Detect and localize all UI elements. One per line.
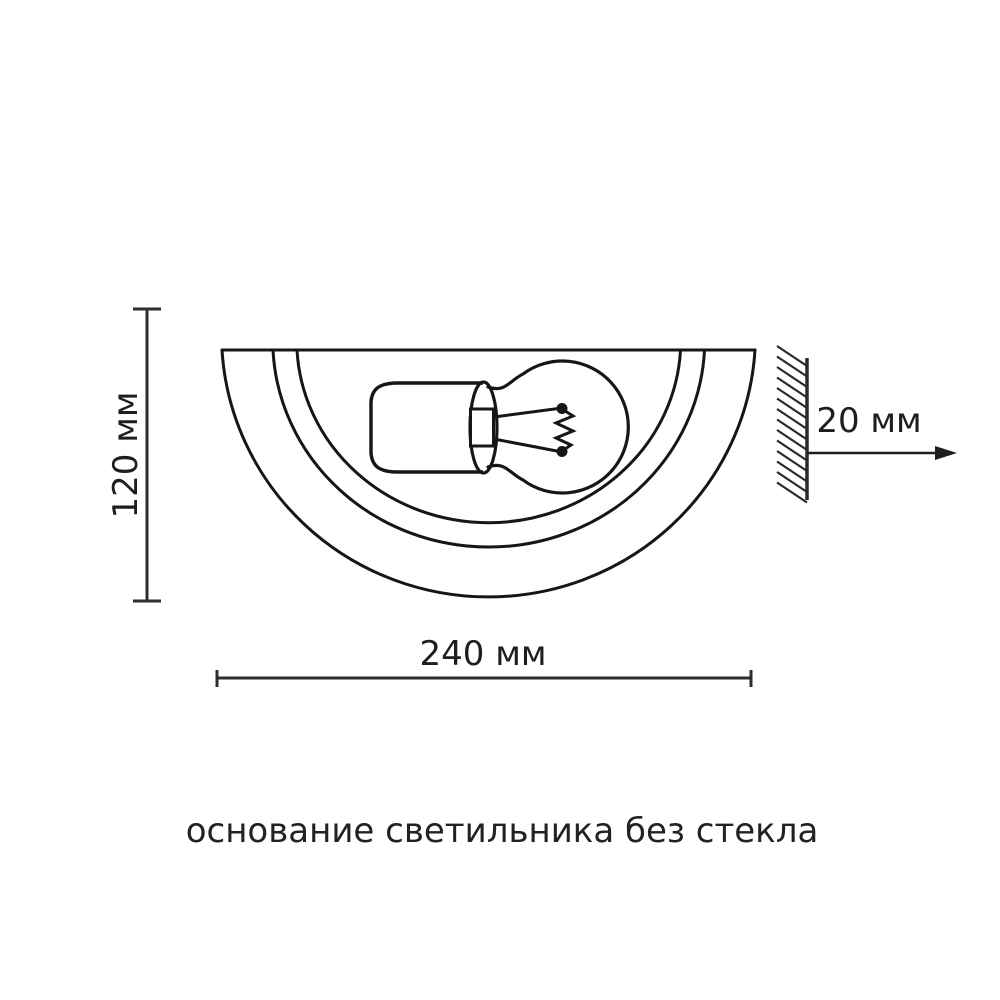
diagram-caption: основание светильника без стекла (186, 814, 819, 848)
filament-wire-top (494, 408, 562, 417)
filament-coil (556, 409, 573, 451)
light-bulb-glass (488, 361, 628, 493)
lamp-socket (371, 382, 497, 473)
width-dimension-label: 240 мм (419, 637, 546, 671)
middle-semicircle (273, 350, 705, 547)
filament-wire-bottom (494, 439, 562, 452)
filament (494, 403, 573, 457)
diagram-canvas: 120 мм 240 мм 20 мм основание светильник… (0, 0, 1000, 1000)
wall-with-hatching (777, 346, 807, 503)
height-dimension-label: 120 мм (109, 391, 143, 518)
filament-support-bottom (557, 446, 568, 457)
bulb-base (471, 409, 494, 446)
offset-arrow-head (935, 446, 957, 460)
wall-offset-label: 20 мм (816, 404, 921, 438)
filament-support-top (557, 403, 568, 414)
socket-body (371, 383, 483, 472)
offset-arrow (808, 446, 957, 460)
wall-hatch (777, 346, 807, 503)
